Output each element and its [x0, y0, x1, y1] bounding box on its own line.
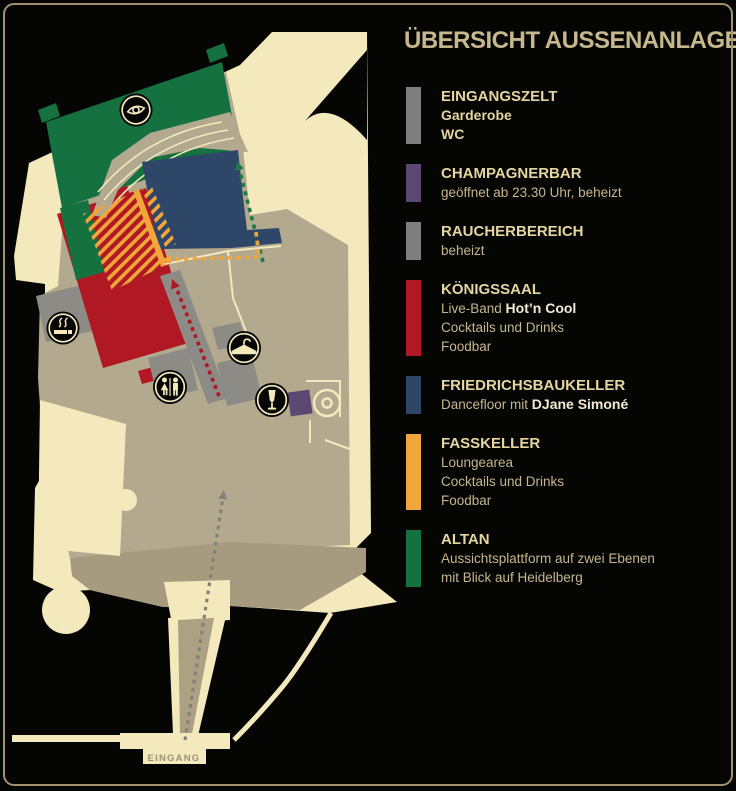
legend-entry: CHAMPAGNERBAR geöffnet ab 23.30 Uhr, beh…: [406, 164, 728, 202]
legend-swatch: [406, 280, 421, 356]
legend-swatch: [406, 87, 421, 144]
legend-entry: EINGANGSZELT GarderobeWC: [406, 87, 728, 144]
legend-entry-lines: geöffnet ab 23.30 Uhr, beheizt: [441, 183, 728, 202]
legend-entry-title: KÖNIGSSAAL: [441, 280, 728, 299]
map-svg: EINGANG: [0, 0, 400, 791]
legend-line: WC: [441, 125, 728, 144]
legend-entry-lines: LoungeareaCocktails und DrinksFoodbar: [441, 453, 728, 510]
page-title: ÜBERSICHT AUSSENANLAGE: [404, 27, 730, 55]
legend-entry: KÖNIGSSAAL Live-Band Hot’n CoolCocktails…: [406, 280, 728, 356]
legend-line: Cocktails und Drinks: [441, 472, 728, 491]
legend-entry-lines: Aussichtsplattform auf zwei Ebenenmit Bl…: [441, 549, 728, 587]
legend-entry-lines: beheizt: [441, 241, 728, 260]
legend-line: mit Blick auf Heidelberg: [441, 568, 728, 587]
wc-icon: [153, 370, 187, 404]
west-terrace: [38, 400, 126, 556]
legend-entry: RAUCHERBEREICH beheizt: [406, 222, 728, 260]
legend-line: Aussichtsplattform auf zwei Ebenen: [441, 549, 728, 568]
legend-line: beheizt: [441, 241, 728, 260]
legend-line: Foodbar: [441, 491, 728, 510]
site-map: EINGANG: [0, 0, 400, 791]
poster: EINGANG: [0, 0, 736, 791]
legend-swatch: [406, 222, 421, 260]
legend-entry-lines: Live-Band Hot’n CoolCocktails und Drinks…: [441, 299, 728, 356]
legend-line: geöffnet ab 23.30 Uhr, beheizt: [441, 183, 728, 202]
legend-line: Live-Band Hot’n Cool: [441, 299, 728, 318]
legend: EINGANGSZELT GarderobeWC CHAMPAGNERBAR g…: [406, 87, 728, 607]
legend-entry: FASSKELLER LoungeareaCocktails und Drink…: [406, 434, 728, 510]
legend-entry-title: FASSKELLER: [441, 434, 728, 453]
legend-entry-title: CHAMPAGNERBAR: [441, 164, 728, 183]
legend-entry-title: RAUCHERBEREICH: [441, 222, 728, 241]
legend-entry-lines: GarderobeWC: [441, 106, 728, 144]
legend-swatch: [406, 530, 421, 587]
legend-entry-title: EINGANGSZELT: [441, 87, 728, 106]
smoking-icon: [47, 312, 80, 345]
wall-bump: [115, 489, 137, 511]
legend-line: Foodbar: [441, 337, 728, 356]
legend-entry-lines: Dancefloor mit DJane Simoné: [441, 395, 728, 414]
legend-entry-title: FRIEDRICHSBAUKELLER: [441, 376, 728, 395]
legend-line: Cocktails und Drinks: [441, 318, 728, 337]
legend-swatch: [406, 376, 421, 414]
champagne-glass-icon: [255, 383, 289, 417]
legend-swatch: [406, 434, 421, 510]
wardrobe-hanger-icon: [227, 331, 261, 365]
area-champagnerbar: [287, 390, 312, 417]
entrance-label: EINGANG: [148, 753, 201, 764]
legend-line: Loungearea: [441, 453, 728, 472]
legend-entry: ALTAN Aussichtsplattform auf zwei Ebenen…: [406, 530, 728, 587]
legend-entry-title: ALTAN: [441, 530, 728, 549]
legend-swatch: [406, 164, 421, 202]
legend-entry: FRIEDRICHSBAUKELLER Dancefloor mit DJane…: [406, 376, 728, 414]
legend-line: Dancefloor mit DJane Simoné: [441, 395, 728, 414]
legend-line: Garderobe: [441, 106, 728, 125]
